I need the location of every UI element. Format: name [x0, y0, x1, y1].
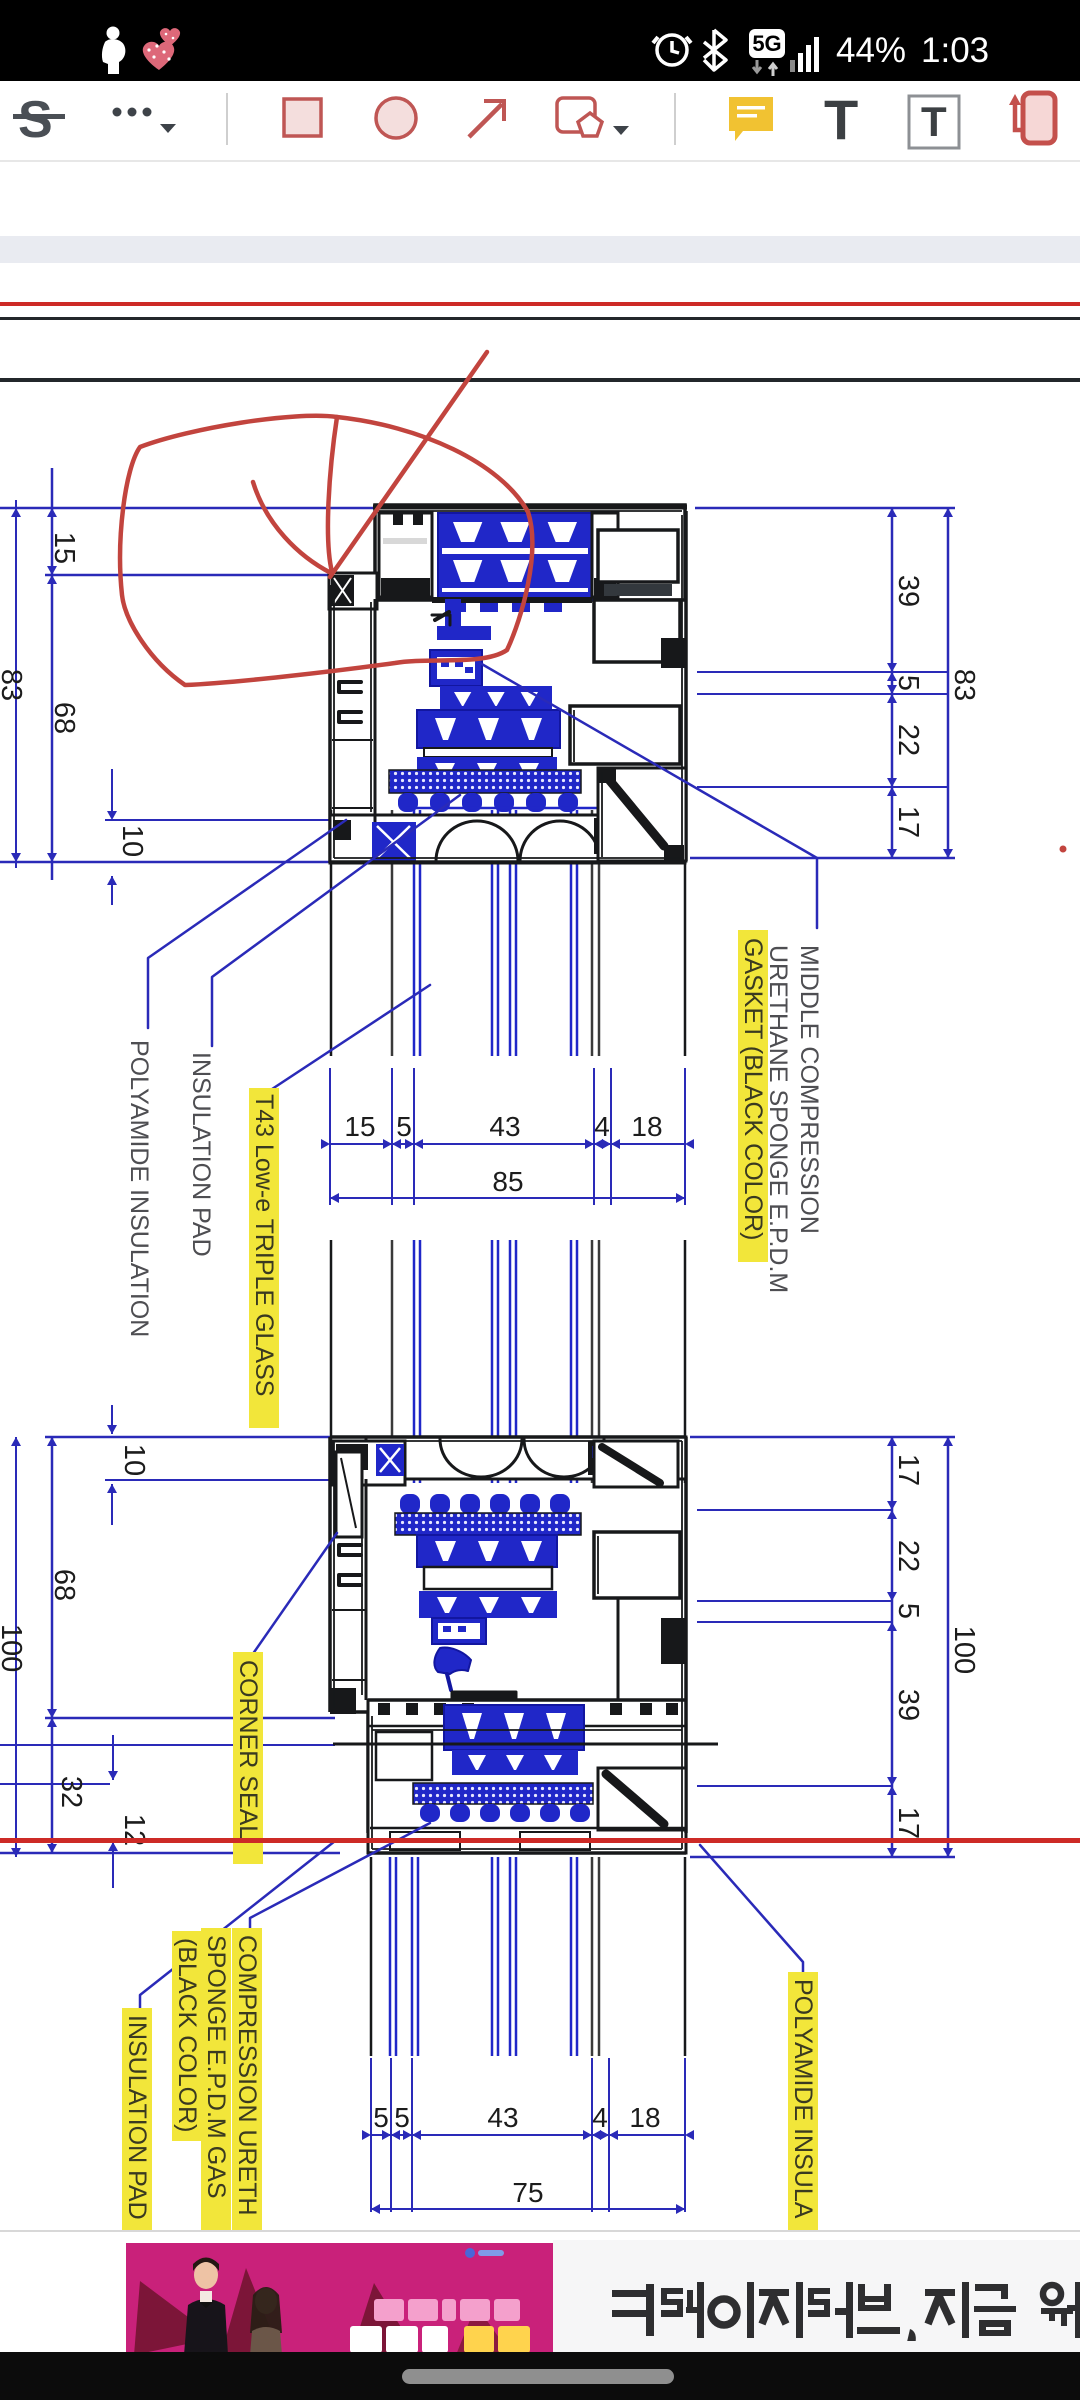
svg-text:75: 75: [512, 2177, 543, 2208]
svg-text:100: 100: [948, 1626, 980, 1674]
svg-text:15: 15: [48, 532, 80, 564]
svg-text:4: 4: [594, 1111, 610, 1142]
svg-text:43: 43: [487, 2102, 518, 2133]
svg-text:5: 5: [394, 2102, 410, 2133]
svg-text:68: 68: [48, 702, 80, 734]
svg-text:CORNER SEAL: CORNER SEAL: [234, 1660, 262, 1839]
svg-text:100: 100: [0, 1624, 27, 1672]
svg-text:5: 5: [892, 1603, 924, 1619]
svg-text:MIDDLE COMPRESSION: MIDDLE COMPRESSION: [795, 945, 823, 1234]
svg-text:68: 68: [48, 1569, 80, 1601]
svg-text:39: 39: [892, 575, 924, 607]
svg-text:T: T: [824, 88, 858, 151]
svg-text:85: 85: [492, 1166, 523, 1197]
svg-text:INSULATION PAD: INSULATION PAD: [187, 1052, 215, 1257]
svg-text:18: 18: [629, 2102, 660, 2133]
svg-text:5: 5: [396, 1111, 412, 1142]
svg-text:URETHANE SPONGE E.P.D.M: URETHANE SPONGE E.P.D.M: [764, 945, 792, 1293]
svg-text:15: 15: [344, 1111, 375, 1142]
svg-text:83: 83: [0, 669, 27, 701]
svg-text:17: 17: [892, 1454, 924, 1486]
svg-text:GASKET (BLACK COLOR): GASKET (BLACK COLOR): [739, 938, 767, 1240]
svg-text:43: 43: [489, 1111, 520, 1142]
svg-text:POLYAMIDE INSULATION: POLYAMIDE INSULATION: [125, 1040, 153, 1337]
svg-text:SPONGE E.P.D.M GAS: SPONGE E.P.D.M GAS: [202, 1935, 230, 2199]
svg-text:32: 32: [55, 1776, 87, 1808]
svg-text:17: 17: [892, 1807, 924, 1839]
svg-text:T: T: [921, 98, 947, 145]
svg-text:22: 22: [892, 1540, 924, 1572]
svg-text:5: 5: [373, 2102, 389, 2133]
svg-text:POLYAMIDE INSULA: POLYAMIDE INSULA: [789, 1979, 817, 2219]
svg-text:10: 10: [118, 1444, 150, 1476]
svg-text:18: 18: [631, 1111, 662, 1142]
svg-text:(BLACK COLOR): (BLACK COLOR): [173, 1938, 201, 2132]
svg-text:5: 5: [892, 675, 924, 691]
svg-text:4: 4: [592, 2102, 608, 2133]
svg-text:17: 17: [892, 806, 924, 838]
svg-text:INSULATION PAD: INSULATION PAD: [123, 2015, 151, 2220]
svg-text:83: 83: [948, 669, 980, 701]
svg-text:COMPRESSION URETH: COMPRESSION URETH: [233, 1935, 261, 2216]
svg-text:S: S: [18, 91, 53, 149]
svg-text:10: 10: [116, 825, 148, 857]
svg-text:22: 22: [892, 724, 924, 756]
svg-text:39: 39: [892, 1689, 924, 1721]
svg-text:T43 Low-e TRIPLE GLASS: T43 Low-e TRIPLE GLASS: [250, 1094, 278, 1396]
